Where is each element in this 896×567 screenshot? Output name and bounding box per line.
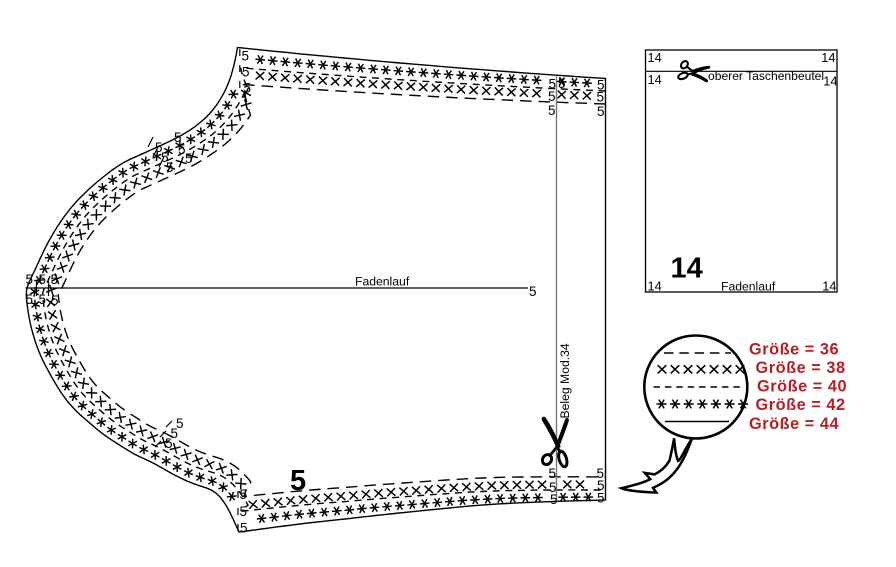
svg-text:5: 5	[26, 272, 34, 287]
svg-text:5: 5	[242, 65, 250, 80]
svg-text:14: 14	[648, 72, 662, 87]
svg-text:5: 5	[548, 466, 556, 481]
svg-text:5: 5	[558, 76, 566, 91]
svg-text:5: 5	[26, 292, 34, 307]
svg-text:5: 5	[242, 49, 250, 64]
svg-text:5: 5	[165, 436, 173, 451]
svg-text:5: 5	[39, 272, 47, 287]
svg-text:Größe = 40: Größe = 40	[757, 378, 847, 396]
svg-text:14: 14	[823, 74, 837, 89]
svg-text:5: 5	[185, 151, 193, 166]
svg-text:5: 5	[39, 292, 47, 307]
svg-text:14: 14	[648, 279, 662, 294]
svg-text:5: 5	[240, 504, 248, 519]
svg-text:5: 5	[166, 160, 174, 175]
svg-text:5: 5	[290, 465, 306, 497]
svg-text:5: 5	[596, 90, 604, 105]
svg-text:Beleg Mod.34: Beleg Mod.34	[558, 343, 572, 418]
svg-text:14: 14	[671, 253, 703, 285]
svg-text:5: 5	[51, 272, 59, 287]
svg-text:14: 14	[821, 50, 835, 65]
svg-text:5: 5	[548, 89, 556, 104]
svg-text:5: 5	[597, 491, 605, 506]
svg-text:5: 5	[529, 284, 537, 299]
svg-text:14: 14	[648, 50, 662, 65]
svg-text:14: 14	[822, 279, 836, 294]
svg-text:5: 5	[597, 104, 605, 119]
svg-text:5: 5	[244, 81, 252, 96]
svg-text:5: 5	[51, 293, 59, 308]
svg-text:5: 5	[240, 487, 248, 502]
svg-text:Fadenlauf: Fadenlauf	[355, 275, 410, 289]
svg-text:5: 5	[548, 103, 556, 118]
svg-text:Größe = 36: Größe = 36	[749, 341, 839, 359]
svg-text:Größe = 38: Größe = 38	[756, 359, 846, 377]
svg-text:oberer Taschenbeutel: oberer Taschenbeutel	[708, 69, 824, 83]
svg-text:Fadenlauf: Fadenlauf	[721, 280, 776, 294]
svg-text:Größe = 44: Größe = 44	[749, 415, 839, 433]
svg-text:Größe = 42: Größe = 42	[756, 396, 846, 414]
svg-text:5: 5	[240, 521, 248, 536]
svg-text:5: 5	[550, 492, 558, 507]
